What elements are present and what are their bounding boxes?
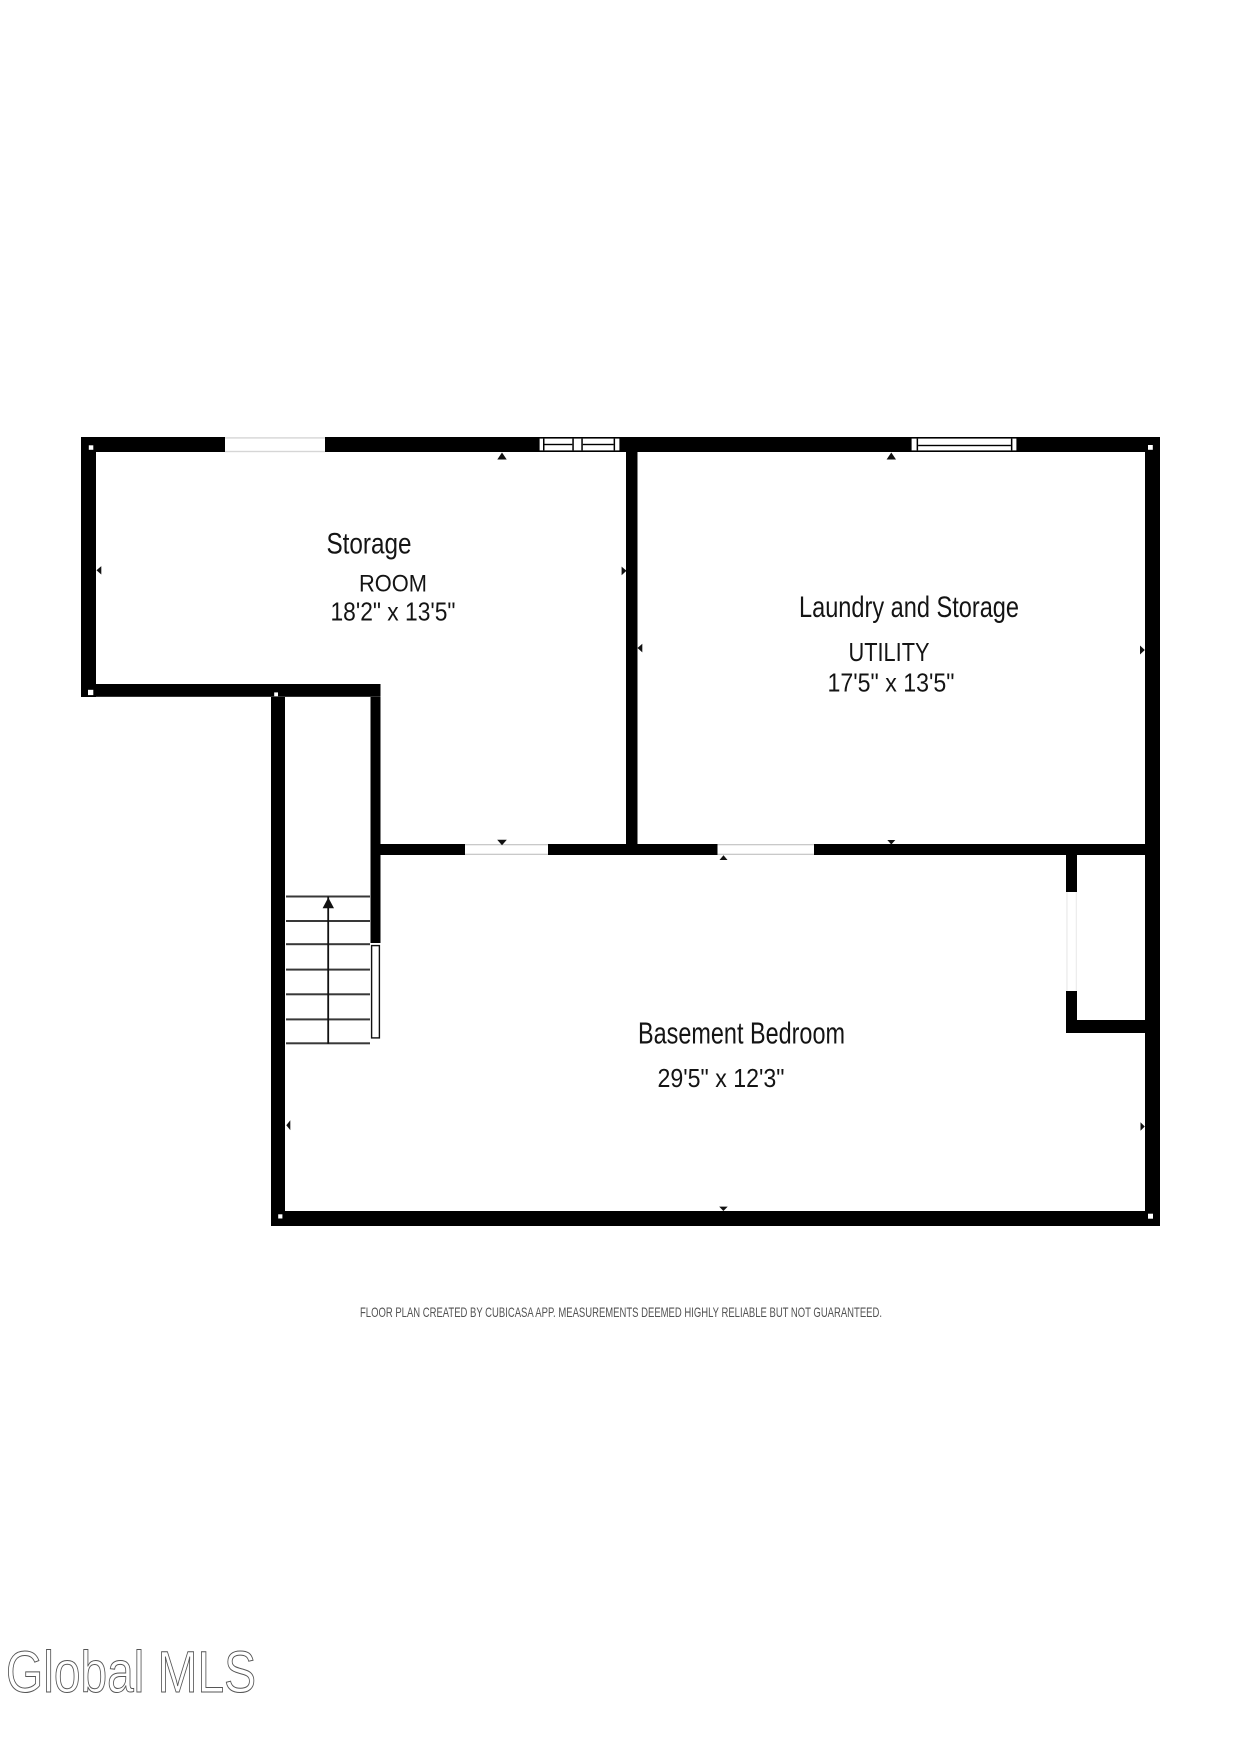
svg-text:29'5" x 12'3": 29'5" x 12'3" [658, 1063, 785, 1093]
svg-text:Global MLS: Global MLS [6, 1640, 256, 1705]
svg-text:Basement Bedroom: Basement Bedroom [638, 1016, 845, 1051]
svg-text:Storage: Storage [327, 528, 412, 561]
svg-text:FLOOR PLAN CREATED BY CUBICASA: FLOOR PLAN CREATED BY CUBICASA APP. MEAS… [360, 1304, 882, 1320]
svg-text:ROOM: ROOM [359, 570, 427, 597]
svg-text:17'5" x 13'5": 17'5" x 13'5" [828, 667, 955, 697]
svg-text:Laundry and Storage: Laundry and Storage [799, 591, 1019, 624]
svg-text:UTILITY: UTILITY [849, 637, 930, 667]
svg-text:18'2" x 13'5": 18'2" x 13'5" [331, 596, 456, 626]
